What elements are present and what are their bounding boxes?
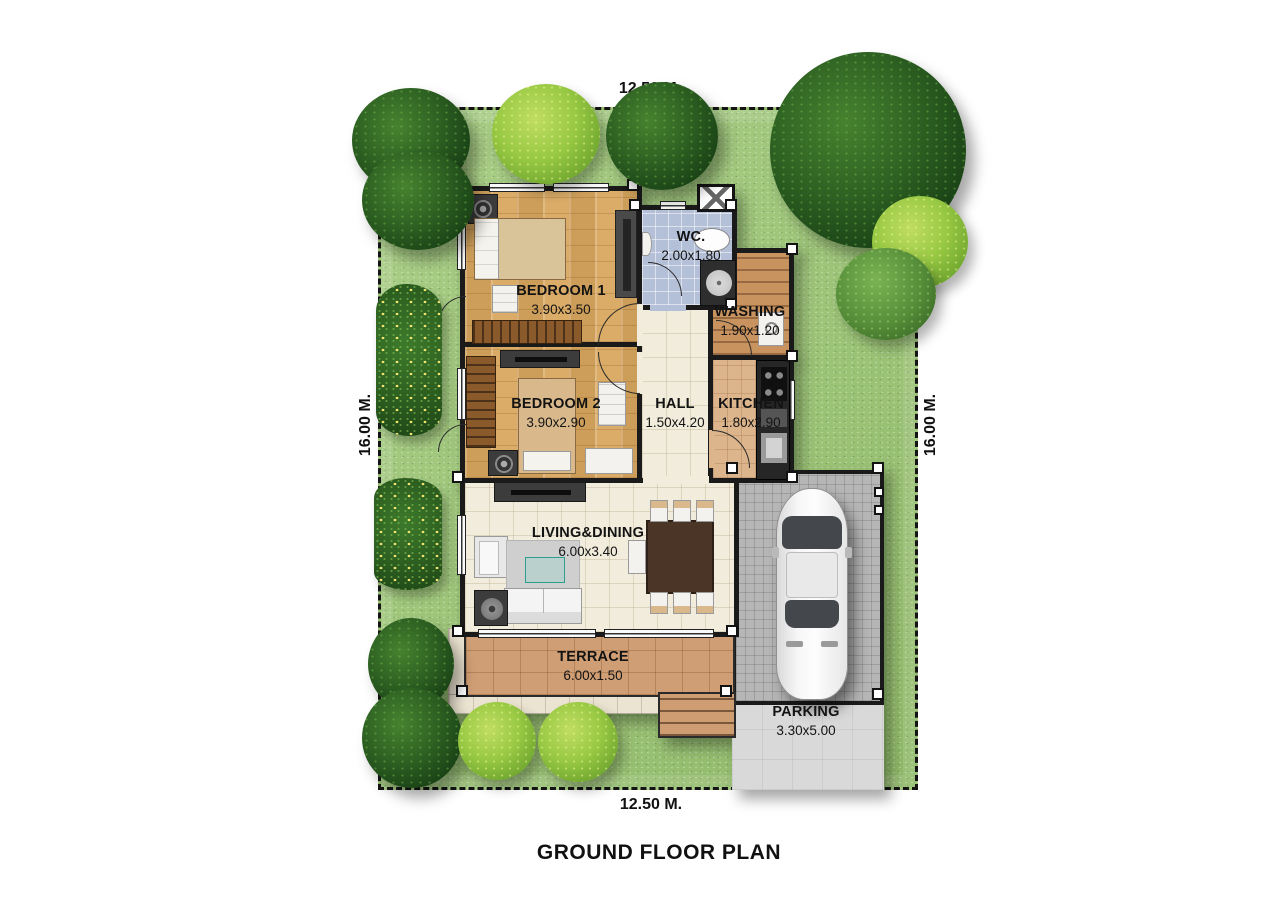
label-kitchen: KITCHEN 1.80x2.90 — [691, 395, 811, 432]
tv-console-icon — [500, 350, 580, 368]
opening-gap — [643, 476, 709, 484]
tv-console-icon — [494, 482, 586, 502]
post-icon — [725, 199, 737, 211]
page-title: GROUND FLOOR PLAN — [509, 841, 809, 865]
door-arc-icon — [438, 424, 466, 452]
room-size: 6.00x3.40 — [513, 543, 663, 561]
room-name: TERRACE — [523, 648, 663, 667]
post-icon — [726, 462, 738, 474]
post-icon — [874, 505, 884, 515]
tree-icon — [606, 82, 718, 190]
car-icon — [776, 488, 848, 700]
window-icon — [660, 201, 686, 210]
room-size: 2.00x1.80 — [631, 247, 751, 265]
wardrobe-icon — [472, 320, 582, 344]
room-name: BEDROOM 1 — [491, 282, 631, 301]
post-icon — [726, 625, 738, 637]
sink-icon — [761, 433, 787, 463]
sliding-door-icon — [604, 629, 714, 638]
tree-icon — [492, 84, 600, 184]
sliding-door-icon — [478, 629, 596, 638]
hedge-icon — [376, 284, 442, 436]
dresser-icon — [585, 448, 633, 474]
room-size: 3.30x5.00 — [736, 722, 876, 740]
tree-icon — [836, 248, 936, 340]
chair-icon — [696, 592, 714, 614]
room-name: WASHING — [690, 303, 810, 322]
dimension-right: 16.00 M. — [922, 380, 940, 470]
chair-icon — [673, 592, 691, 614]
door-arc-icon — [438, 296, 466, 324]
label-parking: PARKING 3.30x5.00 — [736, 703, 876, 740]
post-icon — [456, 685, 468, 697]
room-name: WC. — [631, 228, 751, 247]
bush-icon — [538, 702, 618, 782]
steps-icon — [658, 692, 736, 738]
window-icon — [457, 515, 466, 575]
post-icon — [720, 685, 732, 697]
armchair-icon — [474, 536, 508, 578]
post-icon — [874, 487, 884, 497]
post-icon — [629, 199, 641, 211]
room-name: PARKING — [736, 703, 876, 722]
post-icon — [786, 243, 798, 255]
room-name: BEDROOM 2 — [486, 395, 626, 414]
room-size: 3.90x2.90 — [486, 414, 626, 432]
door-gap — [650, 305, 686, 311]
dimension-bottom: 12.50 M. — [581, 796, 721, 814]
label-terrace: TERRACE 6.00x1.50 — [523, 648, 663, 685]
chair-icon — [696, 500, 714, 522]
room-size: 1.80x2.90 — [691, 414, 811, 432]
sofa-icon — [504, 588, 582, 624]
plant-table-icon — [474, 590, 508, 626]
tree-icon — [362, 150, 474, 250]
post-icon — [786, 471, 798, 483]
room-size: 3.90x3.50 — [491, 301, 631, 319]
label-bedroom1: BEDROOM 1 3.90x3.50 — [491, 282, 631, 319]
dimension-left: 16.00 M. — [357, 380, 375, 470]
post-icon — [786, 350, 798, 362]
chair-icon — [650, 500, 668, 522]
post-icon — [452, 625, 464, 637]
window-icon — [489, 183, 545, 192]
tree-icon — [362, 688, 462, 788]
post-icon — [452, 471, 464, 483]
bed-icon — [474, 218, 566, 280]
label-bedroom2: BEDROOM 2 3.90x2.90 — [486, 395, 626, 432]
label-wc: WC. 2.00x1.80 — [631, 228, 751, 265]
label-living-dining: LIVING&DINING 6.00x3.40 — [513, 524, 663, 561]
chair-icon — [650, 592, 668, 614]
ceiling-fan-icon — [488, 450, 518, 476]
room-name: LIVING&DINING — [513, 524, 663, 543]
hedge-icon — [374, 478, 442, 590]
chair-icon — [673, 500, 691, 522]
bush-icon — [458, 702, 536, 780]
window-icon — [553, 183, 609, 192]
room-name: KITCHEN — [691, 395, 811, 414]
post-icon — [872, 462, 884, 474]
room-size: 6.00x1.50 — [523, 667, 663, 685]
post-icon — [872, 688, 884, 700]
label-washing: WASHING 1.90x1.20 — [690, 303, 810, 340]
window-icon — [457, 368, 466, 420]
floor-plan-canvas: BEDROOM 1 3.90x3.50 WC. 2.00x1.80 WASHIN… — [0, 0, 1280, 905]
room-size: 1.90x1.20 — [690, 322, 810, 340]
